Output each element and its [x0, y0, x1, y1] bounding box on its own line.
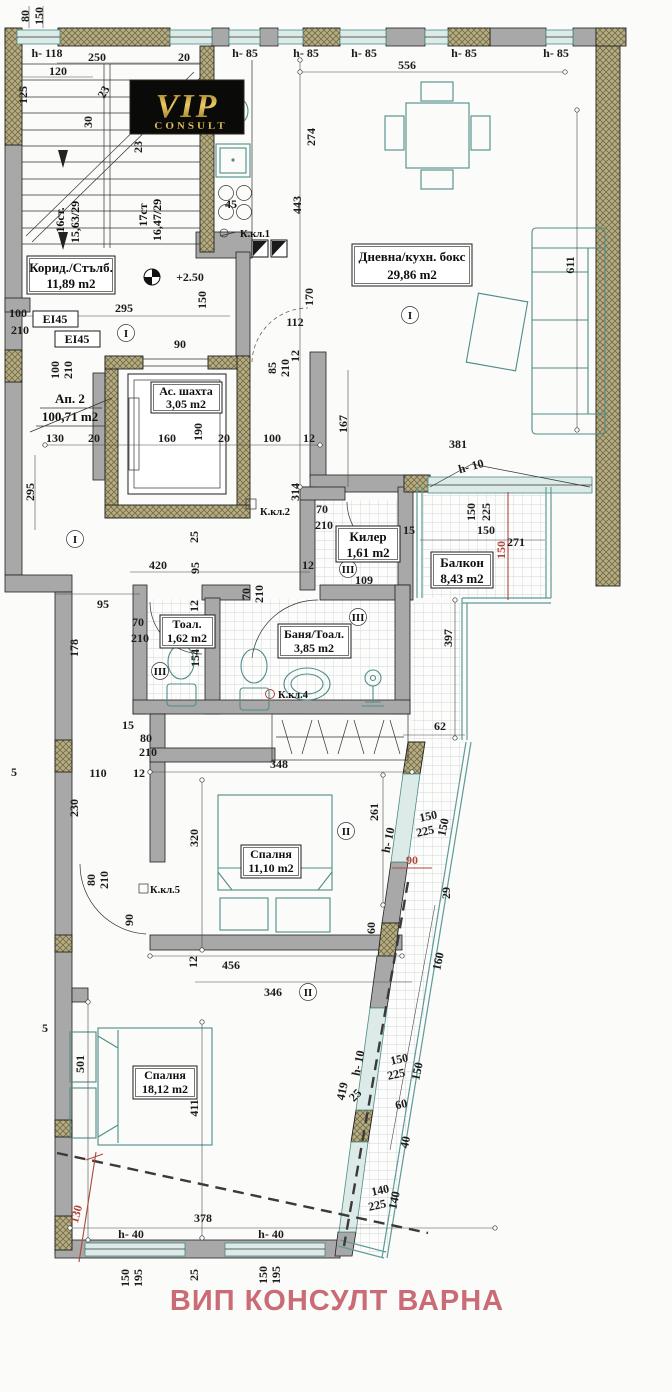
dim-label: 160	[158, 431, 176, 445]
dim-label: 190	[191, 423, 205, 441]
room-area: 8,43 m2	[440, 571, 483, 586]
logo-consult-text: CONSULT	[154, 120, 227, 132]
dim-label: 109	[355, 573, 373, 587]
dim-label: 170	[302, 288, 316, 306]
dim-label: 25	[187, 531, 201, 543]
room-area: 29,86 m2	[387, 267, 437, 282]
dim-label: 90	[174, 337, 186, 351]
dim-label: h- 118	[31, 46, 62, 60]
room-name: Килер	[349, 529, 386, 544]
zone-label: I	[73, 534, 77, 546]
zone-label: I	[408, 310, 412, 322]
dim-label: 12	[186, 956, 200, 968]
room-name: Спалня	[250, 847, 292, 861]
dim-label: 12	[303, 431, 315, 445]
room-name: Ас. шахта	[159, 384, 213, 398]
dim-label: 230	[67, 799, 81, 817]
dim-label: 150	[256, 1266, 270, 1284]
dim-label: 12	[133, 766, 145, 780]
floor-plan-svg: I I I II II III III III EI45 EI45 Корид.…	[0, 0, 672, 1392]
room-name: Тоал.	[172, 617, 201, 631]
dim-label: 210	[139, 745, 157, 759]
room-name: Баня/Тоал.	[284, 627, 344, 641]
room-area: 11,89 m2	[46, 276, 95, 291]
zone-label: I	[124, 328, 128, 340]
stair-calc-label: 16,47/29	[150, 199, 164, 241]
key-label: К.кл.1	[240, 229, 270, 240]
dim-label: 397	[441, 629, 455, 647]
dim-label: 100	[48, 361, 62, 379]
elevator-shaft	[128, 359, 226, 494]
zone-label: II	[304, 987, 313, 999]
zone-label: III	[342, 564, 355, 576]
room-area: 18,12 m2	[142, 1082, 188, 1096]
dim-label: 100	[9, 306, 27, 320]
room-name: Дневна/кухн. бокс	[359, 249, 466, 264]
dim-label: h- 85	[451, 46, 477, 60]
dim-label: 295	[115, 301, 133, 315]
key-label: К.кл.2	[260, 507, 290, 518]
room-name: Корид./Стълб.	[29, 260, 113, 275]
dim-label: 70	[239, 588, 253, 600]
dim-label: 30	[81, 116, 95, 128]
fire-rating-label: EI45	[43, 312, 68, 326]
dim-label: 130	[46, 431, 64, 445]
dim-label: 12	[302, 558, 314, 572]
dim-label: 420	[149, 558, 167, 572]
dim-label: 12	[187, 600, 201, 612]
dim-label: 12	[288, 350, 302, 362]
dim-label: 167	[336, 415, 350, 433]
level-mark	[144, 269, 160, 285]
dim-label: 443	[290, 196, 304, 214]
footer-watermark: ВИП КОНСУЛТ ВАРНА	[170, 1285, 504, 1317]
dim-label-red: 150	[494, 541, 508, 559]
dim-label: 348	[270, 757, 288, 771]
dim-label: 274	[304, 128, 318, 146]
dim-label: 150	[32, 7, 46, 25]
dim-label: 261	[367, 803, 381, 821]
dim-label: 195	[269, 1266, 283, 1284]
dim-label: 210	[97, 871, 111, 889]
dim-label: h- 40	[118, 1227, 144, 1241]
dim-label: 5	[42, 1021, 48, 1035]
dim-label: 120	[49, 64, 67, 78]
dim-label: 320	[187, 829, 201, 847]
dim-label: h- 85	[351, 46, 377, 60]
dim-label: 125	[16, 86, 30, 104]
dim-label: 80	[140, 731, 152, 745]
dim-label: 15	[403, 523, 415, 537]
dim-label: 295	[23, 483, 37, 501]
zone-label: II	[342, 826, 351, 838]
dim-label: 378	[194, 1211, 212, 1225]
stair-flight-label: 16ст.	[53, 207, 67, 232]
dim-label: 60	[364, 922, 378, 934]
dim-label: 62	[434, 719, 446, 733]
dim-label: 346	[264, 985, 282, 999]
room-area: 3,85 m2	[294, 641, 334, 655]
dim-label: 178	[67, 639, 81, 657]
dim-label: 150	[118, 1269, 132, 1287]
dim-label: 150	[464, 503, 478, 521]
dim-label: 456	[222, 958, 240, 972]
dim-label: h- 85	[293, 46, 319, 60]
dim-label: 80	[84, 874, 98, 886]
apartment-area: 100,71 m2	[42, 409, 98, 424]
dim-label: 100	[263, 431, 281, 445]
dim-label: 271	[507, 535, 525, 549]
dim-label: 90	[122, 914, 136, 926]
dim-label: 154	[188, 649, 202, 667]
key-label: К.кл.5	[150, 885, 180, 896]
dim-label: 110	[89, 766, 106, 780]
zone-label: III	[352, 612, 365, 624]
room-name: Балкон	[440, 555, 484, 570]
dim-label: 23	[131, 141, 145, 153]
dim-label: h- 85	[232, 46, 258, 60]
dim-label: 20	[178, 50, 190, 64]
room-name: Спалня	[144, 1068, 186, 1082]
room-area: 1,62 m2	[167, 631, 207, 645]
dim-label: 85	[265, 362, 279, 374]
zone-label: III	[154, 666, 167, 678]
dim-label: 314	[288, 483, 302, 501]
dim-label-red: 90	[406, 853, 418, 867]
dim-label: 210	[252, 585, 266, 603]
dim-label: 25	[187, 1269, 201, 1281]
vip-consult-logo: VIP CONSULT	[130, 80, 244, 134]
dim-label: 210	[61, 361, 75, 379]
dim-label: 381	[449, 437, 467, 451]
dim-label: 95	[188, 562, 202, 574]
dim-label: 250	[88, 50, 106, 64]
dim-label: 20	[218, 431, 230, 445]
dim-label: 210	[131, 631, 149, 645]
apartment-name: Ап. 2	[55, 391, 85, 406]
dim-label: h- 85	[543, 46, 569, 60]
dim-label: 611	[563, 256, 577, 273]
dim-label: 411	[187, 1099, 201, 1116]
floor-plan-page: I I I II II III III III EI45 EI45 Корид.…	[0, 0, 672, 1392]
dim-label: 112	[286, 315, 303, 329]
dim-label: 29	[439, 887, 453, 899]
level-label: +2.50	[176, 270, 204, 284]
dim-label: 80	[18, 10, 32, 22]
fire-rating-label: EI45	[65, 332, 90, 346]
key-label: К.кл.4	[278, 690, 309, 701]
room-area: 11,10 m2	[248, 861, 293, 875]
stair-calc-label: 15,63/29	[68, 201, 82, 243]
dim-label: 95	[97, 597, 109, 611]
dim-label: 70	[316, 502, 328, 516]
dim-label: 501	[73, 1055, 87, 1073]
dim-label: 210	[11, 323, 29, 337]
dim-label: 150	[195, 291, 209, 309]
dim-label: h- 40	[258, 1227, 284, 1241]
room-area: 3,05 m2	[166, 397, 206, 411]
dim-label: 556	[398, 58, 416, 72]
dim-label: 5	[11, 765, 17, 779]
dim-label: 210	[315, 518, 333, 532]
dim-label: 45	[225, 197, 237, 211]
dim-label: 20	[88, 431, 100, 445]
stair-flight-label: 17ст	[136, 203, 150, 226]
dim-label: 70	[132, 615, 144, 629]
dim-label: 195	[131, 1269, 145, 1287]
room-area: 1,61 m2	[346, 545, 389, 560]
dim-label: 15	[122, 718, 134, 732]
dim-label: 150	[477, 523, 495, 537]
dim-label: 225	[479, 503, 493, 521]
